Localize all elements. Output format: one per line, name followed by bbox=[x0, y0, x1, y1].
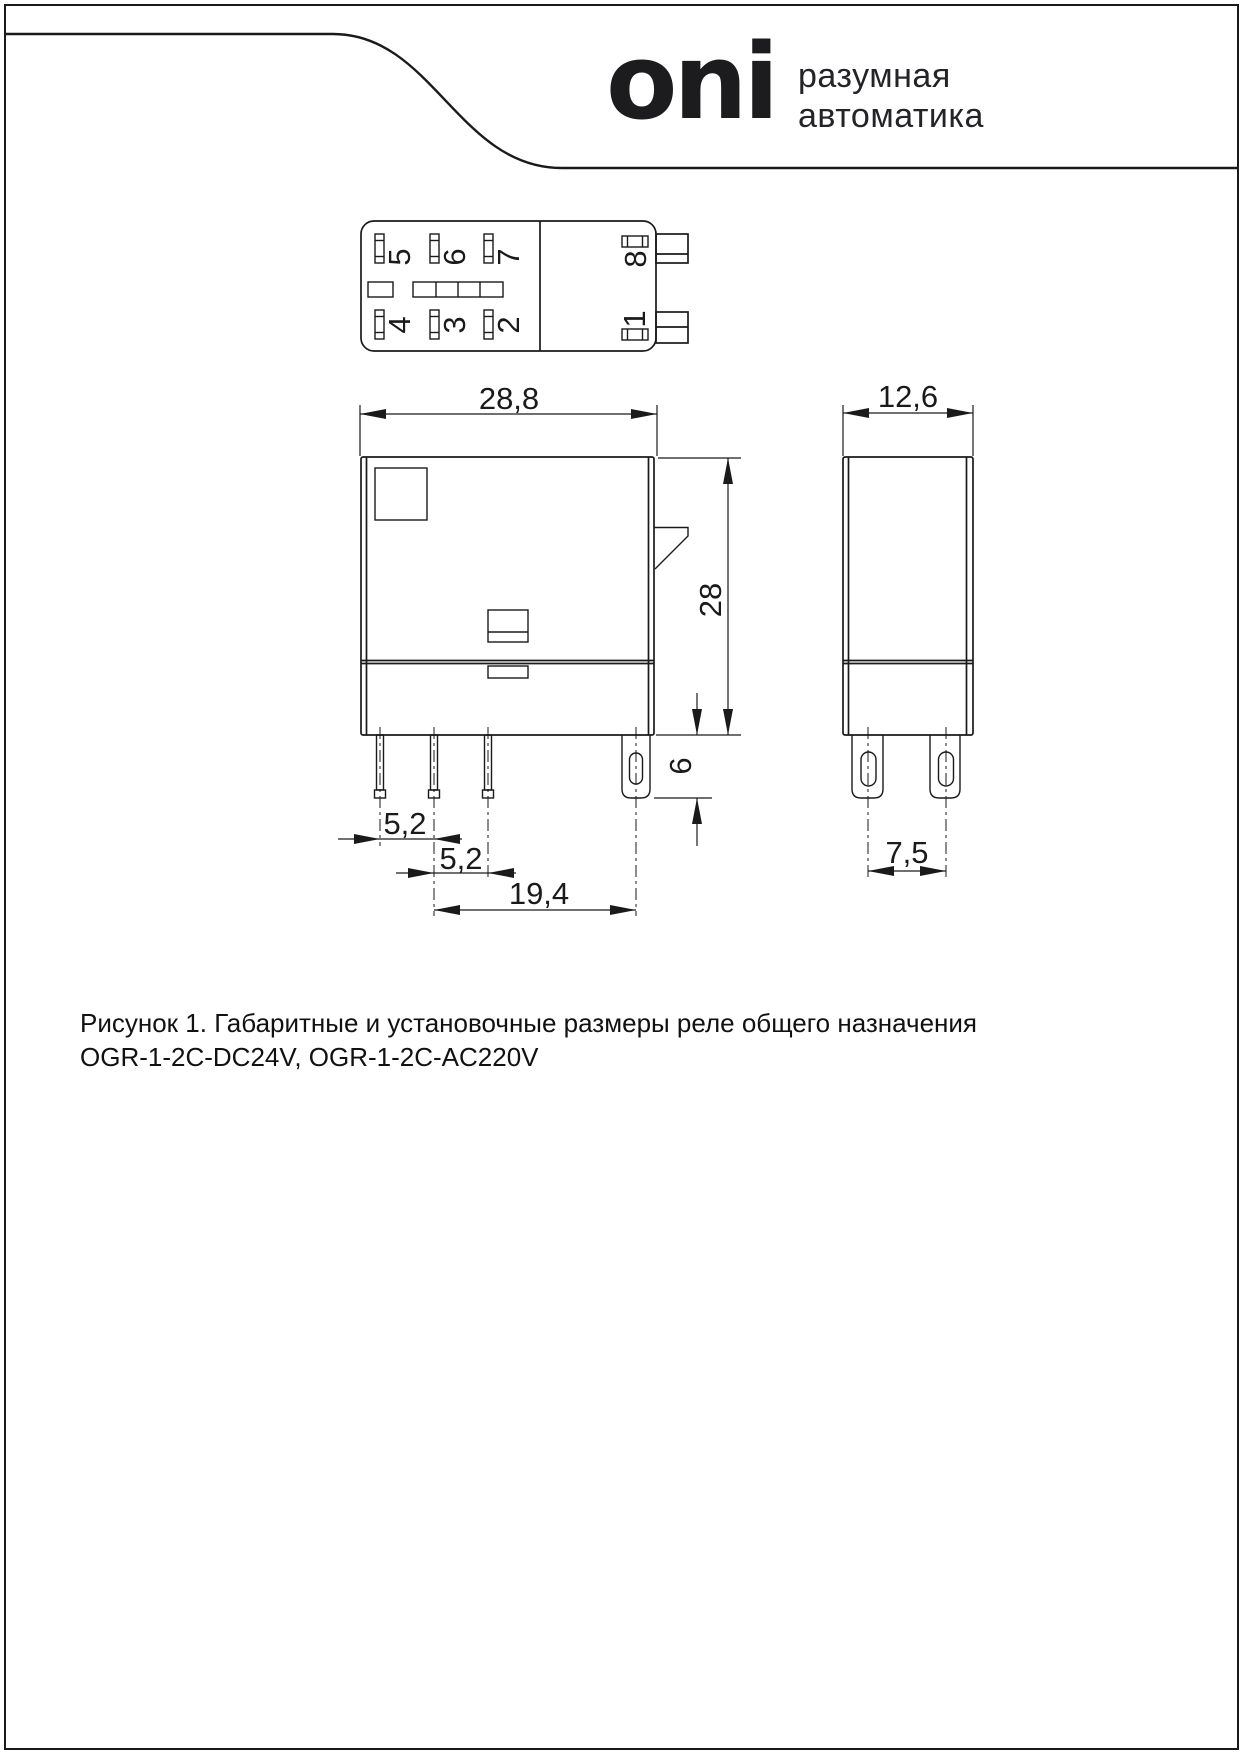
pin-number-6: 6 bbox=[437, 248, 473, 265]
dim-side-width: 12,6 bbox=[878, 379, 938, 415]
brand-tagline-line2: автоматика bbox=[798, 96, 984, 136]
dimension-lines bbox=[338, 405, 973, 910]
dim-front-height: 28 bbox=[693, 583, 729, 617]
pin-number-8: 8 bbox=[618, 250, 654, 267]
brand-logo: oni bbox=[606, 30, 775, 134]
figure-caption-line1: Рисунок 1. Габаритные и установочные раз… bbox=[80, 1006, 977, 1040]
dim-pin-pitch-a: 5,2 bbox=[383, 806, 426, 842]
centerlines bbox=[380, 727, 946, 916]
front-view bbox=[361, 457, 688, 798]
brand-tagline-line1: разумная bbox=[798, 56, 984, 96]
pin-number-5: 5 bbox=[382, 248, 418, 265]
dim-side-pin-pitch: 7,5 bbox=[885, 835, 928, 871]
side-view bbox=[843, 457, 973, 798]
pin-number-4: 4 bbox=[382, 316, 418, 333]
dim-mount-pitch: 19,4 bbox=[509, 876, 569, 912]
brand-tagline: разумная автоматика bbox=[798, 56, 984, 136]
pin-number-1: 1 bbox=[617, 310, 653, 327]
figure-caption: Рисунок 1. Габаритные и установочные раз… bbox=[80, 1006, 977, 1074]
datasheet-page: oni разумная автоматика 5 6 7 4 3 2 8 1 … bbox=[0, 0, 1244, 1754]
figure-caption-line2: OGR-1-2C-DC24V, OGR-1-2C-AC220V bbox=[80, 1040, 977, 1074]
dim-front-width: 28,8 bbox=[479, 381, 539, 417]
pin-number-3: 3 bbox=[437, 316, 473, 333]
dimension-arrowheads bbox=[354, 408, 973, 915]
pin-number-2: 2 bbox=[491, 316, 527, 333]
pin-number-7: 7 bbox=[491, 248, 527, 265]
dim-pin-length: 6 bbox=[663, 757, 699, 774]
dim-pin-pitch-b: 5,2 bbox=[439, 841, 482, 877]
